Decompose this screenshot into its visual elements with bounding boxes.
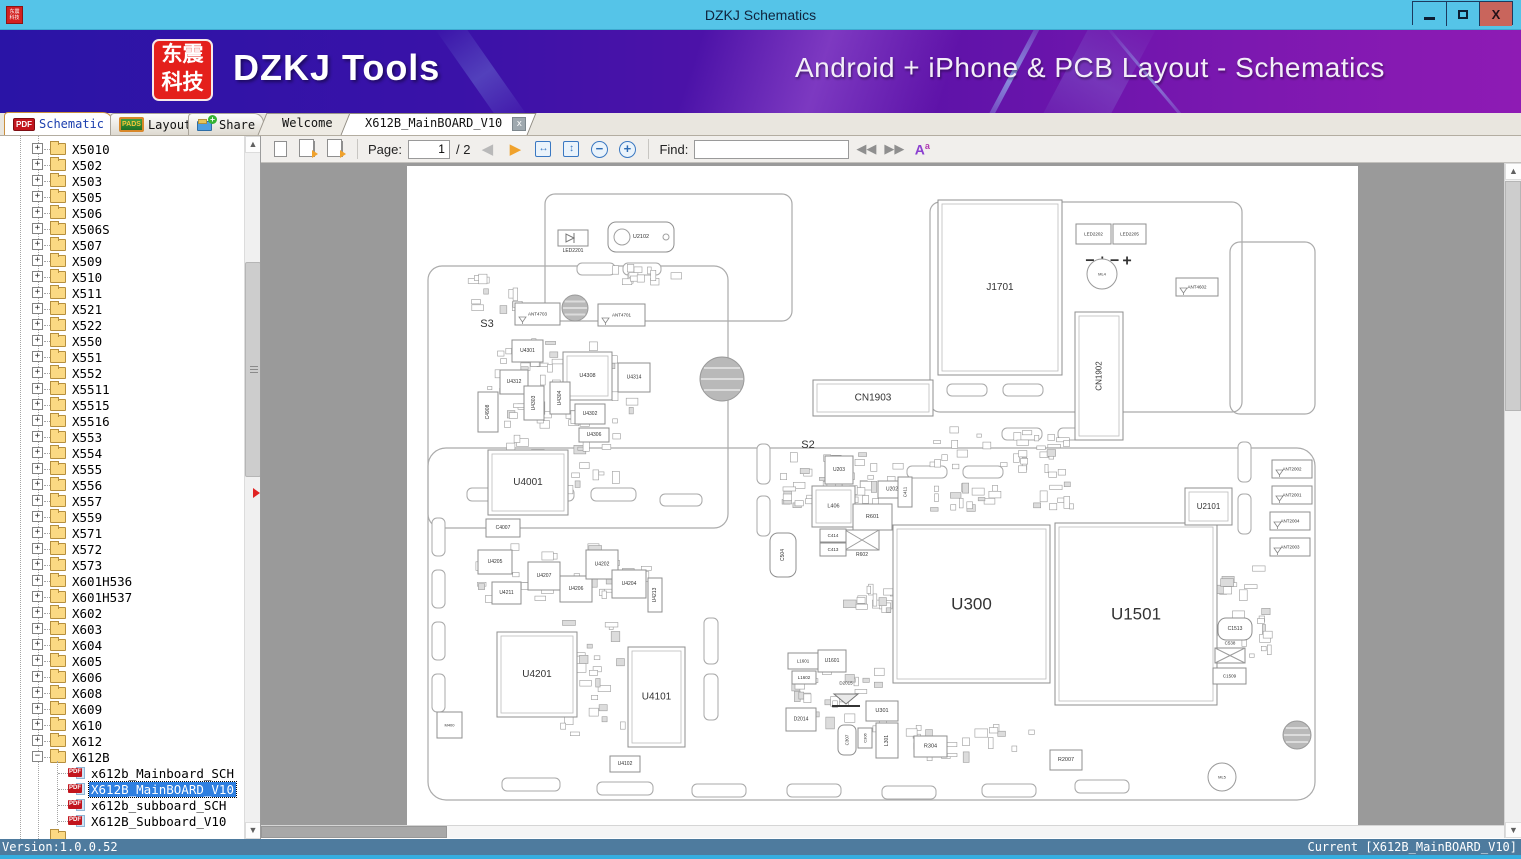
expand-icon[interactable]: + — [32, 687, 43, 698]
tree-folder-label[interactable]: X5515 — [70, 398, 112, 413]
next-page-icon: ▶ — [510, 142, 522, 157]
collapse-icon[interactable]: − — [32, 751, 43, 762]
component-U4314: U4314 — [618, 363, 650, 392]
expand-icon[interactable]: + — [32, 479, 43, 490]
small-component — [863, 678, 869, 682]
small-component — [1058, 498, 1064, 503]
component-U301: U301 — [866, 701, 898, 721]
expand-icon[interactable]: + — [32, 175, 43, 186]
tree-folder-label[interactable]: X506S — [70, 222, 112, 237]
tree-folder-X601H537[interactable]: +X601H537 — [0, 589, 240, 605]
folder-icon — [50, 447, 66, 459]
small-component — [867, 586, 871, 593]
expand-icon[interactable]: + — [32, 655, 43, 666]
tree-folder-X601H536[interactable]: +X601H536 — [0, 573, 240, 589]
small-component — [1029, 730, 1035, 734]
small-component — [1064, 482, 1070, 487]
single-page-view-button[interactable] — [269, 138, 291, 160]
board-slot — [502, 778, 560, 791]
component-label: U4308 — [579, 373, 595, 379]
sidebar-scrollbar-thumb[interactable] — [245, 262, 261, 477]
tab-schematic[interactable]: PDF Schematic — [4, 112, 113, 135]
board-slot — [757, 496, 770, 536]
small-component — [855, 689, 867, 693]
expand-icon[interactable]: + — [32, 367, 43, 378]
screw-hole — [562, 295, 588, 321]
expand-icon[interactable]: + — [32, 415, 43, 426]
tree-folder-label[interactable]: X509 — [70, 254, 104, 269]
zoom-out-button[interactable]: − — [588, 138, 610, 160]
tree-folder-label[interactable]: X601H536 — [70, 574, 134, 589]
tree-folder-X509[interactable]: +X509 — [0, 253, 240, 269]
small-component — [874, 668, 884, 675]
pdf-file-icon: PDF — [68, 799, 85, 811]
component-CN1902: CN1902 — [1075, 312, 1123, 440]
small-component — [629, 407, 633, 414]
maximize-button[interactable] — [1446, 2, 1479, 26]
board-slot — [432, 570, 445, 608]
schematic-page[interactable]: S3S2−+−+ML4ML5J1701U300U1501U4001U4201U4… — [407, 166, 1358, 838]
tree-file-x612b_subboard_SCH[interactable]: PDFx612b_subboard_SCH — [0, 797, 240, 813]
minimize-button[interactable] — [1413, 2, 1446, 26]
tree-folder-label[interactable]: X572 — [70, 542, 104, 557]
expand-icon[interactable]: + — [32, 319, 43, 330]
bottom-accent-strip — [0, 855, 1521, 859]
component-U203: U203 — [825, 456, 853, 484]
tree-folder-label[interactable]: X502 — [70, 158, 104, 173]
board-slot — [1238, 494, 1251, 534]
expand-icon[interactable]: + — [32, 223, 43, 234]
small-component — [472, 305, 484, 311]
scroll-down-icon[interactable]: ▼ — [245, 822, 261, 839]
small-component — [934, 440, 941, 443]
small-component — [572, 473, 580, 478]
component-label: U203 — [833, 467, 845, 473]
find-previous-icon: ◀◀ — [856, 141, 876, 157]
small-component — [1049, 472, 1057, 477]
small-component — [1018, 466, 1026, 473]
small-component — [1022, 431, 1032, 435]
tree-folder-X573[interactable]: +X573 — [0, 557, 240, 573]
small-component — [1064, 497, 1070, 509]
doc-tab-welcome[interactable]: Welcome — [262, 113, 353, 135]
tree-folder-X552[interactable]: +X552 — [0, 365, 240, 381]
component-U4102: U4102 — [610, 756, 640, 772]
component-label: R602 — [856, 552, 868, 558]
tree-folder-label[interactable]: X5511 — [70, 382, 112, 397]
tree-folder-label[interactable]: X554 — [70, 446, 104, 461]
facing-pages-view-button[interactable] — [297, 138, 319, 160]
scroll-up-icon[interactable]: ▲ — [245, 136, 261, 153]
tree-folder-label[interactable]: X601H537 — [70, 590, 134, 605]
tree-file-X612B_Subboard_V10[interactable]: PDFX612B_Subboard_V10 — [0, 813, 240, 829]
tree-folder-X555[interactable]: +X555 — [0, 461, 240, 477]
tree-folder-X5010[interactable]: +X5010 — [0, 141, 240, 157]
tree-folder-label[interactable]: X571 — [70, 526, 104, 541]
tree-folder-label[interactable]: X610 — [70, 718, 104, 733]
pages-icon — [302, 141, 315, 157]
small-component — [580, 680, 592, 686]
small-component — [613, 434, 621, 439]
horizontal-scrollbar-thumb[interactable] — [261, 826, 447, 838]
match-case-button[interactable]: Aa — [911, 138, 933, 160]
component-LED2201: LED2201 — [558, 230, 588, 254]
folder-icon — [50, 479, 66, 491]
component-label: C1513 — [1228, 626, 1243, 632]
expand-icon[interactable]: + — [32, 463, 43, 474]
tree-folder-label[interactable]: X552 — [70, 366, 104, 381]
small-component — [989, 491, 1001, 498]
continuous-view-button[interactable] — [325, 138, 347, 160]
folder-icon — [50, 671, 66, 683]
doc-tab-x612b-mainboard[interactable]: X612B_MainBOARD_V10 x — [345, 113, 532, 135]
small-component — [513, 573, 519, 577]
tree-folder-label[interactable]: X604 — [70, 638, 104, 653]
vertical-scrollbar-thumb[interactable] — [1505, 181, 1521, 411]
tree-folder-label[interactable]: X612B — [70, 750, 112, 765]
tree-folder-X521[interactable]: +X521 — [0, 301, 240, 317]
tree-folder-X503[interactable]: +X503 — [0, 173, 240, 189]
small-component — [592, 695, 598, 699]
next-page-button[interactable]: ▶ — [504, 138, 526, 160]
component-U4301: U4301 — [512, 340, 543, 362]
tree-file-x612b_Mainboard_SCH[interactable]: PDFx612b_Mainboard_SCH — [0, 765, 240, 781]
expand-icon[interactable]: + — [32, 335, 43, 346]
expand-icon[interactable]: + — [32, 271, 43, 282]
expand-icon[interactable]: + — [32, 303, 43, 314]
small-component — [602, 445, 611, 450]
tab-layout[interactable]: PADS Layout — [110, 113, 200, 135]
tree-folder-X610[interactable]: +X610 — [0, 717, 240, 733]
component-label: CN1902 — [1095, 361, 1104, 391]
component-U1601: U1601 — [818, 650, 846, 672]
small-component — [594, 656, 600, 660]
component-label: R304 — [924, 744, 937, 750]
pcb-schematic-canvas: S3S2−+−+ML4ML5J1701U300U1501U4001U4201U4… — [407, 166, 1358, 838]
component-ANT4703: ANT4703 — [515, 303, 560, 325]
component-label: ANT2003 — [1280, 545, 1300, 550]
tree-folder-label[interactable]: X551 — [70, 350, 104, 365]
tree-folder-label[interactable]: X606 — [70, 670, 104, 685]
status-bar: Version:1.0.0.52 Current [X612B_MainBOAR… — [0, 839, 1521, 855]
tree-folder-X571[interactable]: +X571 — [0, 525, 240, 541]
tree-folder-label[interactable]: X612 — [70, 734, 104, 749]
small-component — [868, 476, 874, 480]
small-component — [1267, 645, 1271, 655]
tree-folder-X5511[interactable]: +X5511 — [0, 381, 240, 397]
tree-folder-label[interactable]: X559 — [70, 510, 104, 525]
expand-icon[interactable]: + — [32, 383, 43, 394]
tree-folder-X606[interactable]: +X606 — [0, 669, 240, 685]
component-label: U2102 — [633, 234, 649, 240]
close-button[interactable]: X — [1479, 2, 1512, 26]
find-next-button[interactable]: ▶▶ — [883, 138, 905, 160]
app-banner: 东震 科技 DZKJ Tools Android + iPhone & PCB … — [0, 30, 1521, 113]
tree-folder-label[interactable]: X573 — [70, 558, 104, 573]
small-component — [935, 494, 939, 502]
small-component — [946, 742, 957, 746]
tree-folder-X502[interactable]: +X502 — [0, 157, 240, 173]
component-label: U4303 — [531, 395, 537, 410]
viewer-horizontal-scrollbar[interactable] — [261, 825, 1504, 838]
tree-folder-label[interactable]: X5010 — [70, 142, 112, 157]
tree-folder-X612[interactable]: +X612 — [0, 733, 240, 749]
tree-file-label[interactable]: x612b_Mainboard_SCH — [89, 766, 236, 781]
component-label: U300 — [951, 595, 992, 614]
tree-folder-label[interactable]: X556 — [70, 478, 104, 493]
component-label: ANT2001 — [1282, 493, 1302, 498]
small-component — [1250, 654, 1255, 657]
small-component — [542, 552, 553, 560]
component-U4101: U4101 — [628, 647, 685, 747]
small-component — [479, 274, 487, 284]
component-C4908: C4908 — [478, 392, 498, 432]
folder-icon — [50, 239, 66, 251]
tree-folder-label[interactable]: X602 — [70, 606, 104, 621]
small-component — [886, 608, 891, 613]
tree-file-label[interactable]: X612B_Subboard_V10 — [89, 814, 228, 829]
tree-folder-X510[interactable]: +X510 — [0, 269, 240, 285]
tree-folder-X5515[interactable]: +X5515 — [0, 397, 240, 413]
doc-tab-close-icon[interactable]: x — [512, 117, 526, 131]
component-LED2205: LED2205 — [1113, 224, 1146, 244]
tree-file-X612B_MainBOARD_V10[interactable]: PDFX612B_MainBOARD_V10 — [0, 781, 240, 797]
expand-icon[interactable]: + — [32, 431, 43, 442]
tree-folder-label[interactable]: X505 — [70, 190, 104, 205]
folder-icon — [50, 719, 66, 731]
folder-icon — [50, 463, 66, 475]
tree-folder-X612B[interactable]: −X612B — [0, 749, 240, 765]
tree-folder-X609[interactable]: +X609 — [0, 701, 240, 717]
component-label: U4101 — [642, 692, 672, 703]
component-U4201: U4201 — [497, 632, 577, 717]
tree-folder-label[interactable]: X510 — [70, 270, 104, 285]
component-R2007: R2007 — [1050, 750, 1082, 770]
tree-folder-X506[interactable]: +X506 — [0, 205, 240, 221]
component-R304: R304 — [914, 736, 947, 757]
expand-icon[interactable]: + — [32, 527, 43, 538]
small-component — [546, 341, 556, 344]
tree-folder-X505[interactable]: +X505 — [0, 189, 240, 205]
tree-folder-X507[interactable]: +X507 — [0, 237, 240, 253]
expand-icon[interactable]: + — [32, 543, 43, 554]
page-number-input[interactable] — [408, 140, 450, 159]
folder-icon — [50, 831, 66, 839]
tree-folder-label[interactable]: X609 — [70, 702, 104, 717]
tree-folder-label[interactable]: X506 — [70, 206, 104, 221]
component-label: LED2201 — [563, 248, 584, 254]
expand-icon[interactable]: + — [32, 575, 43, 586]
small-component — [505, 421, 511, 427]
component-label: U202 — [886, 487, 898, 493]
tree-folder-X5516[interactable]: +X5516 — [0, 413, 240, 429]
expand-icon[interactable]: + — [32, 607, 43, 618]
small-component — [843, 600, 856, 608]
titlebar: 东震 科技 DZKJ Schematics X — [0, 0, 1521, 30]
component-label: L1601 — [797, 659, 810, 664]
small-component — [963, 752, 969, 763]
component-C307: C307 — [838, 725, 856, 755]
component-label: ANT4703 — [528, 312, 548, 317]
component-U2102: U2102 — [608, 222, 674, 252]
component-label: U4314 — [627, 375, 642, 381]
small-component — [826, 717, 835, 729]
expand-icon[interactable]: + — [32, 255, 43, 266]
expand-icon[interactable]: + — [32, 191, 43, 202]
small-component — [800, 468, 809, 473]
tree-folder-partial[interactable] — [0, 829, 240, 839]
board-slot — [1238, 442, 1251, 482]
share-folder-icon: + — [197, 118, 215, 131]
expand-icon[interactable]: + — [32, 703, 43, 714]
tree-folder-label[interactable]: X555 — [70, 462, 104, 477]
zoom-in-button[interactable]: + — [616, 138, 638, 160]
tree-folder-X554[interactable]: +X554 — [0, 445, 240, 461]
tab-share[interactable]: + Share — [188, 113, 264, 135]
expand-icon[interactable]: + — [32, 719, 43, 730]
viewer-vertical-scrollbar[interactable]: ▲ ▼ — [1504, 163, 1521, 838]
section-label-S3: S3 — [480, 318, 493, 330]
find-input[interactable] — [694, 140, 849, 159]
tree-folder-label[interactable]: X553 — [70, 430, 104, 445]
small-component — [634, 267, 642, 273]
tree-folder-X602[interactable]: +X602 — [0, 605, 240, 621]
fit-width-button[interactable]: ↔ — [532, 138, 554, 160]
expand-icon[interactable]: + — [32, 511, 43, 522]
small-component — [1047, 450, 1056, 457]
small-component — [951, 505, 956, 511]
tree-file-label[interactable]: X612B_MainBOARD_V10 — [89, 782, 236, 797]
folder-icon — [50, 207, 66, 219]
component-L1601: L1601 — [788, 653, 818, 669]
previous-page-button[interactable]: ◀ — [476, 138, 498, 160]
expand-icon[interactable]: + — [32, 623, 43, 634]
small-component — [535, 596, 546, 600]
expand-icon[interactable]: + — [32, 591, 43, 602]
tree-folder-X550[interactable]: +X550 — [0, 333, 240, 349]
expand-icon[interactable]: + — [32, 671, 43, 682]
small-component — [1012, 746, 1017, 751]
expand-icon[interactable]: + — [32, 351, 43, 362]
small-component — [593, 470, 599, 480]
small-component — [1262, 608, 1270, 614]
tree-folder-label[interactable]: X521 — [70, 302, 104, 317]
component-J1701: J1701 — [938, 200, 1062, 375]
component-label: L301 — [884, 735, 890, 746]
close-icon: X — [1492, 7, 1501, 22]
find-previous-button[interactable]: ◀◀ — [855, 138, 877, 160]
small-component — [992, 485, 997, 491]
splitter-collapse-arrow[interactable] — [253, 488, 260, 498]
tree-folder-label[interactable]: X550 — [70, 334, 104, 349]
tree-folder-X556[interactable]: +X556 — [0, 477, 240, 493]
tree-folder-label[interactable]: X557 — [70, 494, 104, 509]
board-slot — [963, 466, 1003, 478]
tree-folder-X559[interactable]: +X559 — [0, 509, 240, 525]
tree-folder-label[interactable]: X603 — [70, 622, 104, 637]
tree-folder-X557[interactable]: +X557 — [0, 493, 240, 509]
expand-icon[interactable]: + — [32, 559, 43, 570]
tree-folder-label[interactable]: X605 — [70, 654, 104, 669]
tree-folder-label[interactable]: X5516 — [70, 414, 112, 429]
tree-folder-X506S[interactable]: +X506S — [0, 221, 240, 237]
fit-page-button[interactable]: ↕ — [560, 138, 582, 160]
folder-icon — [50, 351, 66, 363]
tree-folder-X605[interactable]: +X605 — [0, 653, 240, 669]
expand-icon[interactable]: + — [32, 447, 43, 458]
component-label: C307 — [845, 734, 850, 745]
small-component — [1017, 440, 1029, 446]
component-U4001: U4001 — [488, 450, 568, 515]
component-label: M400 — [444, 723, 455, 728]
expand-icon[interactable]: + — [32, 735, 43, 746]
small-component — [978, 498, 985, 501]
small-component — [845, 714, 855, 722]
scroll-down-icon[interactable]: ▼ — [1505, 822, 1521, 838]
small-component — [1035, 435, 1039, 441]
tree-folder-label[interactable]: X511 — [70, 286, 104, 301]
tree-folder-X511[interactable]: +X511 — [0, 285, 240, 301]
small-component — [950, 493, 961, 499]
small-component — [580, 463, 590, 469]
expand-icon[interactable]: + — [32, 495, 43, 506]
small-component — [472, 300, 481, 304]
component-C538: C538 — [1215, 641, 1245, 664]
expand-icon[interactable]: + — [32, 143, 43, 154]
expand-icon[interactable]: + — [32, 159, 43, 170]
component-label: U4204 — [622, 581, 637, 587]
tree-folder-X608[interactable]: +X608 — [0, 685, 240, 701]
board-outline — [1230, 242, 1315, 414]
tree-folder-X572[interactable]: +X572 — [0, 541, 240, 557]
small-component — [859, 453, 867, 457]
component-label: L1602 — [798, 675, 811, 680]
small-component — [863, 496, 869, 504]
folder-icon — [50, 495, 66, 507]
tree-folder-X603[interactable]: +X603 — [0, 621, 240, 637]
tree-folder-X604[interactable]: +X604 — [0, 637, 240, 653]
small-component — [602, 717, 607, 722]
tree-folder-label[interactable]: X608 — [70, 686, 104, 701]
tree-folder-X553[interactable]: +X553 — [0, 429, 240, 445]
page-icon — [274, 141, 287, 157]
expand-icon[interactable]: + — [32, 639, 43, 650]
expand-icon[interactable]: + — [32, 399, 43, 410]
expand-icon[interactable]: + — [32, 287, 43, 298]
small-component — [613, 266, 619, 275]
scroll-up-icon[interactable]: ▲ — [1505, 163, 1521, 180]
component-U1501: U1501 — [1055, 523, 1217, 705]
tree-file-label[interactable]: x612b_subboard_SCH — [89, 798, 228, 813]
expand-icon[interactable]: + — [32, 239, 43, 250]
folder-icon — [50, 511, 66, 523]
small-component — [942, 455, 948, 461]
small-component — [963, 483, 969, 493]
company-logo: 东震 科技 — [152, 39, 213, 101]
folder-icon — [50, 575, 66, 587]
small-component — [906, 729, 917, 736]
component-U4206: U4206 — [560, 576, 592, 602]
small-component — [947, 753, 957, 756]
tree-folder-label[interactable]: X503 — [70, 174, 104, 189]
expand-icon[interactable]: + — [32, 207, 43, 218]
tree-folder-label[interactable]: X507 — [70, 238, 104, 253]
small-component — [1058, 469, 1065, 475]
tree-folder-X551[interactable]: +X551 — [0, 349, 240, 365]
tree-folder-X522[interactable]: +X522 — [0, 317, 240, 333]
component-M400: M400 — [437, 712, 462, 738]
tree-folder-label[interactable]: X522 — [70, 318, 104, 333]
